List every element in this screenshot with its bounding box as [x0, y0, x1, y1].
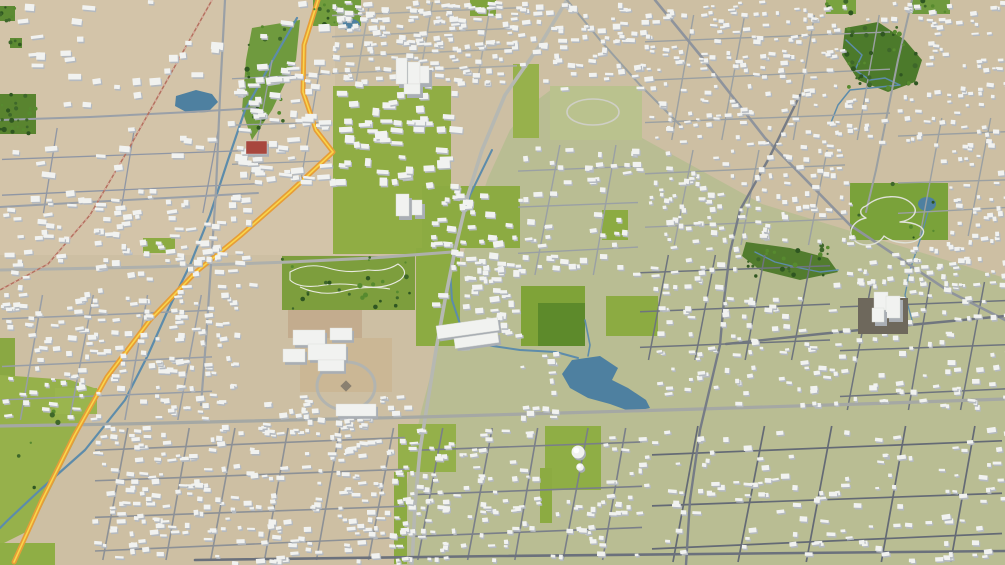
dark-crop-square	[538, 303, 585, 346]
pale-loop-field	[550, 86, 642, 140]
southwest-corner-green	[0, 543, 55, 565]
school-green	[606, 296, 658, 336]
water-tank-green	[545, 426, 601, 490]
city-map-svg	[0, 0, 1005, 565]
red-roof-building	[246, 141, 269, 157]
avenue-strip-south-2	[540, 468, 552, 523]
long-retail-building	[336, 404, 378, 419]
city-map-render	[0, 0, 1005, 565]
